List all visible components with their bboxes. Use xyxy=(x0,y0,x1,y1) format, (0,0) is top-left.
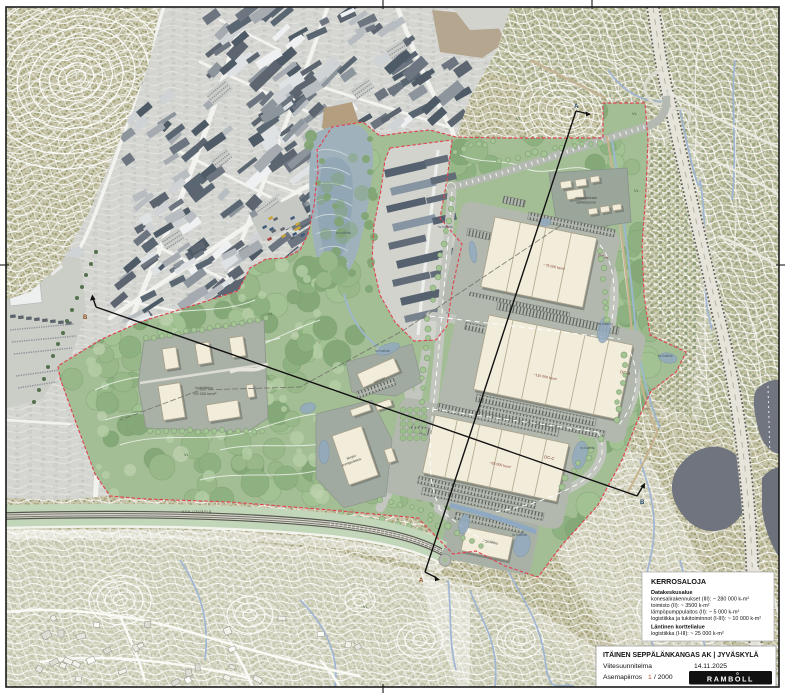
svg-text:hv-hallinta: hv-hallinta xyxy=(512,533,527,537)
svg-text:/ 2000: / 2000 xyxy=(654,674,673,681)
svg-text:KOILLISVÄYLÄ: KOILLISVÄYLÄ xyxy=(182,510,212,514)
svg-text:toimisto (II): ~ 3500 k-m²: toimisto (II): ~ 3500 k-m² xyxy=(651,603,710,609)
svg-text:logistiikka ja tukitoiminnot (: logistiikka ja tukitoiminnot (I-III): ~ … xyxy=(651,616,761,622)
svg-text:14.11.2025: 14.11.2025 xyxy=(694,663,727,670)
svg-text:hv-hallinta: hv-hallinta xyxy=(598,322,613,326)
svg-text:A: A xyxy=(574,104,579,110)
svg-text:hv-hallinta: hv-hallinta xyxy=(336,231,351,235)
svg-text:VL: VL xyxy=(632,111,638,116)
svg-text:VL: VL xyxy=(516,116,522,121)
svg-text:Datakeskusalue: Datakeskusalue xyxy=(651,590,693,596)
svg-text:A: A xyxy=(419,578,424,584)
svg-text:Viitesuunnitelma: Viitesuunnitelma xyxy=(603,663,652,670)
svg-text:hv-hallinta: hv-hallinta xyxy=(580,446,595,450)
svg-text:sähköasema: sähköasema xyxy=(576,201,595,205)
svg-text:Asemapiirros: Asemapiirros xyxy=(603,674,643,681)
svg-text:datakeskuksen: datakeskuksen xyxy=(575,196,598,200)
svg-text:RAMBOLL: RAMBOLL xyxy=(707,675,754,684)
svg-text:hv-hallinta: hv-hallinta xyxy=(658,354,673,358)
svg-text:KERROSALOJA: KERROSALOJA xyxy=(651,577,706,586)
svg-text:VL: VL xyxy=(268,311,274,316)
svg-text:logistiikka (I-III): ~ 25 000: logistiikka (I-III): ~ 25 000 k-m² xyxy=(651,631,724,637)
svg-text:VL: VL xyxy=(634,188,640,193)
svg-text:ITÄINEN SEPPÄLÄNKANGAS AK | JY: ITÄINEN SEPPÄLÄNKANGAS AK | JYVÄSKYLÄ xyxy=(603,651,759,659)
svg-text:hv-hallinta: hv-hallinta xyxy=(438,225,453,229)
svg-text:1: 1 xyxy=(648,674,652,681)
svg-text:VL: VL xyxy=(646,406,652,411)
svg-text:lämpöpumppulaitos (II): ~ 5 00: lämpöpumppulaitos (II): ~ 5 000 k-m² xyxy=(651,610,739,616)
svg-text:Läntinen korttelialue: Läntinen korttelialue xyxy=(651,625,705,631)
svg-text:VL: VL xyxy=(184,452,190,457)
svg-text:hv-hallinta: hv-hallinta xyxy=(375,349,390,353)
svg-text:VL: VL xyxy=(363,604,369,609)
svg-text:B: B xyxy=(83,315,88,321)
svg-text:konesalirakennukset (III): ~ 2: konesalirakennukset (III): ~ 280 000 k-m… xyxy=(651,597,749,603)
svg-text:B: B xyxy=(640,500,645,506)
